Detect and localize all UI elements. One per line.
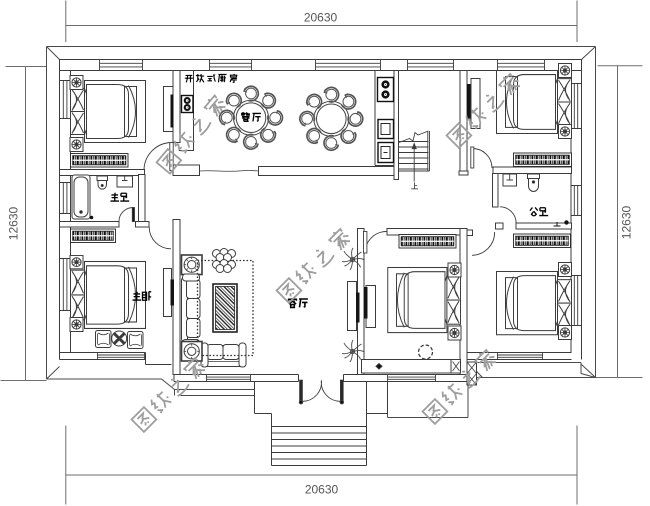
svg-text:12630: 12630 xyxy=(7,206,21,240)
svg-text:12630: 12630 xyxy=(620,205,634,239)
svg-text:20630: 20630 xyxy=(304,11,338,25)
svg-text:20630: 20630 xyxy=(305,483,339,497)
